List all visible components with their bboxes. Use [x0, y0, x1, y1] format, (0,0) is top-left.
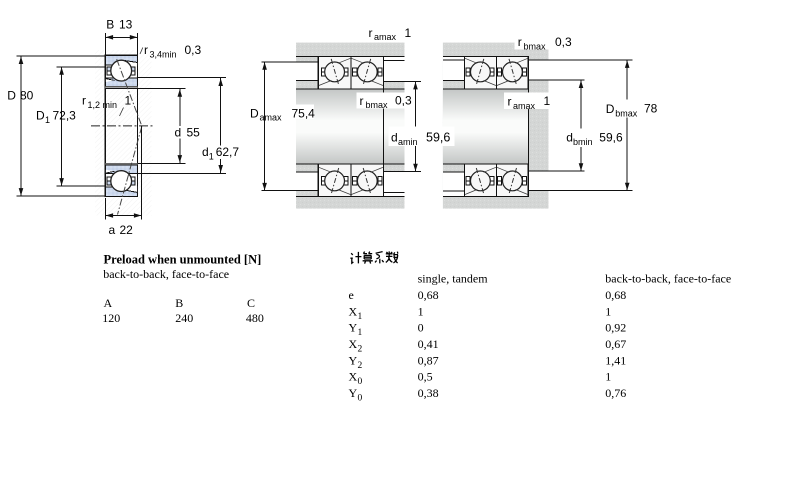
svg-text:59,6: 59,6: [599, 131, 623, 145]
svg-text:0,3: 0,3: [395, 94, 412, 108]
svg-text:0,92: 0,92: [605, 321, 626, 335]
svg-text:55: 55: [187, 125, 201, 139]
svg-text:Preload when unmounted [N]: Preload when unmounted [N]: [104, 252, 262, 266]
svg-text:back-to-back, face-to-face: back-to-back, face-to-face: [103, 267, 229, 281]
svg-text:Y: Y: [349, 386, 358, 400]
svg-text:1: 1: [544, 94, 551, 108]
svg-text:bmin: bmin: [573, 137, 593, 147]
svg-text:80: 80: [20, 89, 34, 103]
svg-text:62,7: 62,7: [216, 145, 240, 159]
svg-text:C: C: [247, 296, 255, 310]
svg-text:72,3: 72,3: [53, 109, 77, 123]
svg-text:amax: amax: [513, 101, 536, 111]
svg-text:1: 1: [358, 312, 363, 322]
svg-text:0,87: 0,87: [418, 353, 439, 367]
svg-text:0,5: 0,5: [418, 370, 433, 384]
svg-text:d: d: [175, 125, 182, 139]
svg-text:1,41: 1,41: [605, 353, 626, 367]
svg-text:1,2 min: 1,2 min: [88, 100, 118, 110]
svg-text:0,67: 0,67: [605, 337, 626, 351]
svg-text:13: 13: [119, 18, 133, 32]
svg-text:D: D: [7, 89, 16, 103]
svg-text:75,4: 75,4: [292, 106, 316, 120]
svg-text:X: X: [349, 304, 358, 318]
svg-text:amax: amax: [260, 113, 283, 123]
svg-text:480: 480: [246, 311, 264, 325]
svg-text:amax: amax: [374, 32, 397, 42]
svg-text:3,4min: 3,4min: [150, 49, 177, 59]
svg-text:back-to-back, face-to-face: back-to-back, face-to-face: [605, 271, 731, 285]
svg-text:B: B: [106, 18, 114, 32]
svg-text:0,76: 0,76: [605, 386, 626, 400]
svg-text:r: r: [144, 43, 148, 57]
svg-text:0,38: 0,38: [418, 386, 439, 400]
svg-text:r: r: [508, 95, 512, 109]
svg-text:59,6: 59,6: [426, 130, 450, 144]
svg-text:0,68: 0,68: [605, 288, 626, 302]
svg-text:Y: Y: [349, 321, 358, 335]
svg-text:d: d: [566, 131, 573, 145]
svg-text:1: 1: [209, 151, 214, 161]
svg-text:r: r: [369, 26, 373, 40]
svg-text:1: 1: [358, 328, 363, 338]
svg-text:X: X: [349, 370, 358, 384]
svg-text:1: 1: [405, 26, 412, 40]
svg-text:0,68: 0,68: [418, 288, 439, 302]
svg-text:r: r: [360, 94, 364, 108]
svg-text:amin: amin: [398, 137, 418, 147]
svg-text:0: 0: [418, 321, 424, 335]
svg-text:B: B: [175, 296, 183, 310]
svg-text:0,3: 0,3: [555, 35, 572, 49]
svg-text:0: 0: [358, 377, 363, 387]
svg-text:1: 1: [45, 115, 50, 125]
svg-text:A: A: [104, 296, 113, 310]
svg-text:bmax: bmax: [366, 100, 389, 110]
svg-text:X: X: [349, 337, 358, 351]
svg-text:d: d: [202, 145, 209, 159]
svg-text:1: 1: [125, 94, 132, 108]
svg-text:22: 22: [120, 223, 134, 237]
svg-text:D: D: [606, 102, 615, 116]
svg-text:single, tandem: single, tandem: [418, 271, 489, 285]
svg-text:120: 120: [102, 311, 120, 325]
svg-text:e: e: [349, 288, 354, 302]
svg-text:0,41: 0,41: [418, 337, 439, 351]
svg-text:1: 1: [605, 304, 611, 318]
svg-text:0: 0: [358, 393, 363, 403]
svg-text:1: 1: [418, 304, 424, 318]
svg-text:D: D: [250, 106, 259, 120]
svg-text:2: 2: [358, 345, 363, 355]
svg-text:bmax: bmax: [615, 108, 638, 118]
svg-text:0,3: 0,3: [185, 43, 202, 57]
svg-text:r: r: [518, 35, 522, 49]
svg-text:a: a: [109, 223, 116, 237]
svg-text:D: D: [36, 109, 45, 123]
svg-text:Y: Y: [349, 353, 358, 367]
svg-text:240: 240: [175, 311, 193, 325]
svg-text:1: 1: [605, 370, 611, 384]
svg-text:bmax: bmax: [524, 41, 547, 51]
svg-text:r: r: [82, 94, 86, 108]
svg-text:d: d: [391, 131, 398, 145]
svg-text:78: 78: [644, 101, 658, 115]
svg-text:2: 2: [358, 361, 363, 371]
